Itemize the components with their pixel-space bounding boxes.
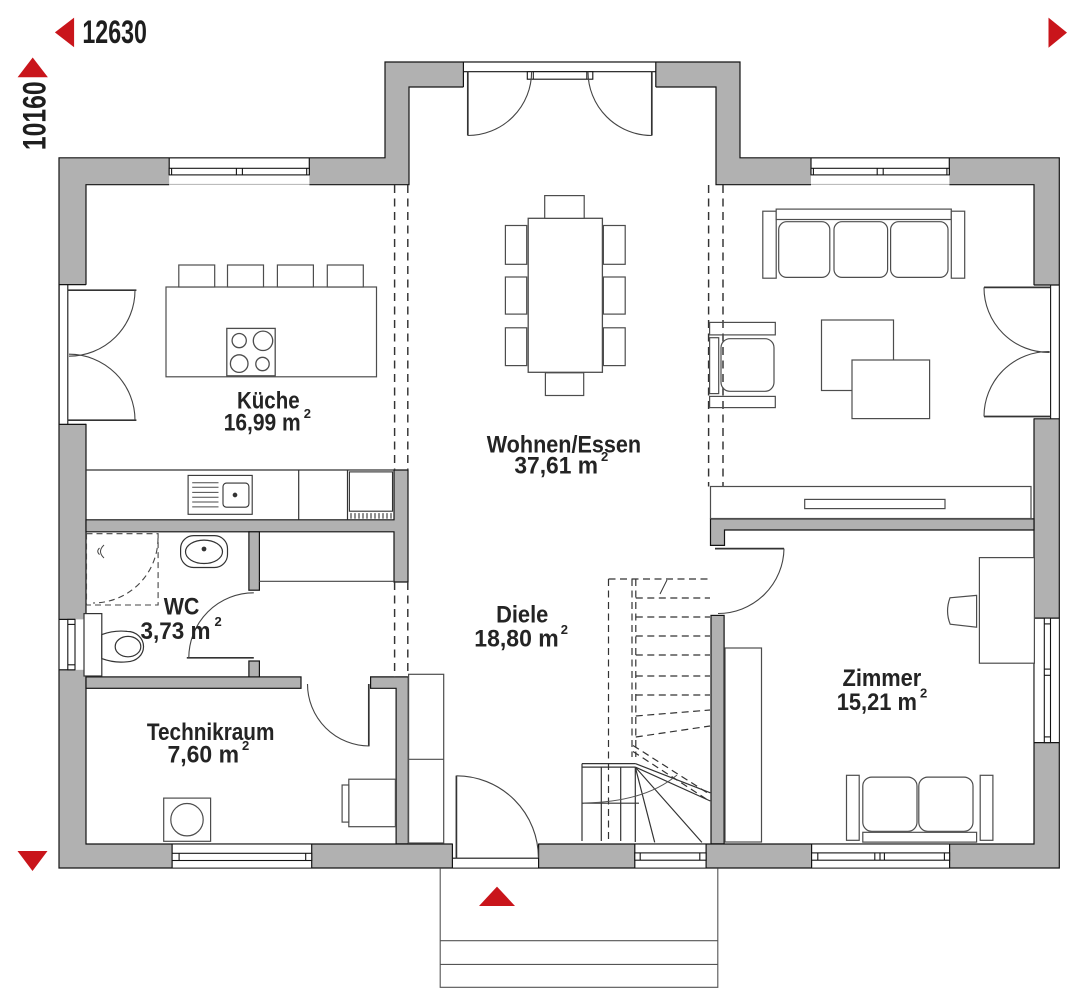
svg-text:7,60 m: 7,60 m — [168, 742, 240, 769]
svg-text:WC: WC — [164, 593, 200, 620]
svg-text:2: 2 — [561, 622, 568, 637]
svg-text:12630: 12630 — [82, 14, 146, 50]
svg-text:2: 2 — [601, 449, 608, 464]
svg-text:2: 2 — [304, 406, 311, 421]
svg-text:2: 2 — [242, 738, 249, 753]
svg-text:Zimmer: Zimmer — [843, 665, 922, 692]
svg-text:2: 2 — [920, 685, 927, 700]
svg-text:18,80 m: 18,80 m — [474, 626, 558, 653]
svg-text:37,61 m: 37,61 m — [514, 452, 598, 479]
svg-text:3,73 m: 3,73 m — [141, 618, 211, 645]
svg-text:2: 2 — [215, 614, 222, 629]
svg-text:15,21 m: 15,21 m — [837, 689, 917, 716]
svg-text:10160: 10160 — [16, 81, 52, 150]
svg-text:Diele: Diele — [496, 602, 548, 629]
svg-text:16,99 m: 16,99 m — [224, 410, 301, 437]
